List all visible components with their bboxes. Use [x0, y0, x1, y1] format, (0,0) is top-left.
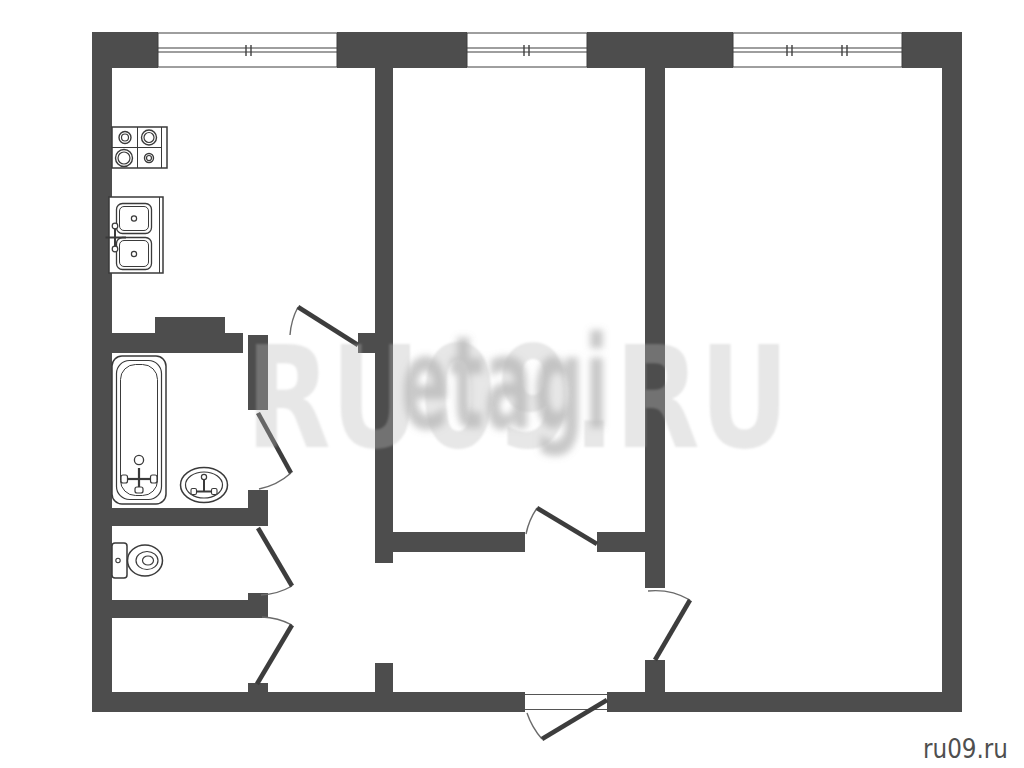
rightroom-door-leaf: [655, 600, 690, 660]
floorplan-image: etagi RU09.RU ru09.ru: [0, 0, 1024, 768]
middleroom-window: [467, 33, 587, 67]
wall-outer-top-seg3: [587, 32, 733, 68]
middleroom-door-swing-arc: [526, 508, 537, 534]
wall-outer-top-seg2: [337, 32, 467, 68]
wall-middleroom-bottom-left: [393, 532, 525, 552]
bathroom-sink-faucet-handle: [191, 489, 197, 495]
wall-bath-corridor-jamb3: [248, 683, 268, 712]
wall-toilet-bottom: [112, 600, 248, 618]
wall-outer-left: [92, 32, 112, 712]
kitchen-faucet-handle: [112, 246, 118, 252]
toilet-door-leaf: [258, 528, 292, 586]
rightroom-door-swing-arc: [648, 591, 690, 600]
kitchen-window: [158, 33, 337, 67]
toilet-bowl: [128, 545, 163, 576]
wall-outer-bottom-left: [92, 692, 525, 712]
bathtub-faucet-handle: [151, 475, 158, 483]
bathroom-sink-faucet-knob: [201, 474, 206, 479]
bathtub-faucet-base: [135, 487, 143, 493]
wall-bath-corridor-jamb1: [248, 490, 268, 526]
kitchen-faucet-handle: [112, 223, 118, 229]
watermark-ru09: RU09.RU: [246, 317, 789, 480]
rightroom-window: [733, 33, 902, 67]
wall-room-divider-stub: [645, 660, 665, 692]
floor-plan-drawing: etagi RU09.RU ru09.ru: [0, 0, 1024, 768]
wall-outer-bottom-right: [607, 692, 962, 712]
bathroom-sink-faucet-handle: [212, 489, 218, 495]
wall-bath-corridor-jamb2: [248, 593, 268, 618]
storage-door-swing-arc: [262, 617, 292, 625]
wall-kitchen-vent-bump: [155, 317, 225, 333]
bathtub-faucet-handle: [121, 475, 128, 483]
wall-outer-top-seg1: [92, 32, 158, 68]
storage-door-leaf: [257, 625, 292, 684]
entrance-door-swing-arc: [527, 713, 542, 739]
toilet-tank: [112, 543, 127, 578]
wall-middleroom-left-stub: [375, 663, 393, 692]
wall-bathroom-bottom: [112, 508, 248, 526]
wall-middleroom-left: [375, 68, 393, 563]
middleroom-door-leaf: [537, 508, 597, 544]
wall-kitchen-bottom-left: [112, 333, 243, 353]
wall-middleroom-bottom-right: [597, 532, 645, 552]
wall-outer-right: [942, 32, 962, 712]
site-caption-ru09: ru09.ru: [923, 733, 1008, 764]
